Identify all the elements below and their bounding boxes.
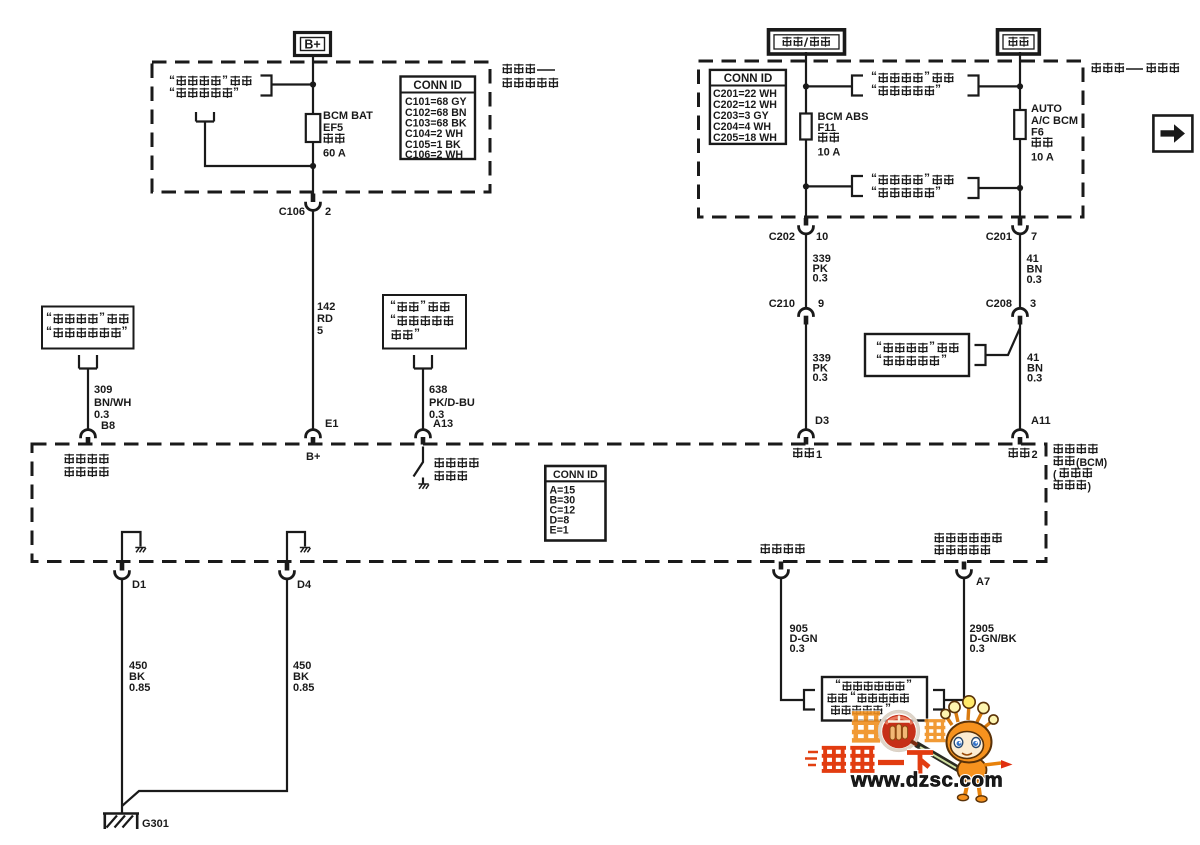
svg-text:0.3: 0.3 (1027, 274, 1042, 286)
svg-text:B+: B+ (306, 451, 320, 463)
svg-text:0.85: 0.85 (129, 682, 150, 694)
svg-text:D1: D1 (132, 579, 146, 591)
svg-text:0.3: 0.3 (790, 643, 805, 655)
svg-text:A11: A11 (1031, 415, 1051, 427)
svg-text:BCM BAT: BCM BAT (323, 110, 373, 122)
svg-text:RD: RD (317, 313, 333, 325)
svg-text:D4: D4 (297, 579, 312, 591)
svg-text:“: “ (876, 352, 882, 366)
svg-text:F11: F11 (818, 122, 836, 134)
svg-text:EF5: EF5 (323, 122, 343, 134)
svg-text:”: ” (222, 73, 228, 87)
svg-text:309: 309 (94, 384, 112, 396)
svg-text:A/C BCM: A/C BCM (1031, 115, 1078, 127)
svg-text:“: “ (390, 298, 396, 312)
svg-text:“: “ (46, 310, 52, 324)
svg-text:“: “ (871, 69, 877, 83)
svg-text:E1: E1 (325, 418, 338, 430)
svg-text:0.3: 0.3 (1027, 373, 1042, 385)
svg-text:“: “ (169, 85, 175, 99)
svg-text:7: 7 (1031, 231, 1037, 243)
svg-text:A7: A7 (976, 576, 990, 588)
svg-text:”: ” (924, 69, 930, 83)
svg-text:”: ” (906, 677, 912, 691)
svg-text:AUTO: AUTO (1031, 103, 1062, 115)
svg-text:”: ” (929, 339, 935, 353)
svg-text:“: “ (871, 82, 877, 96)
svg-text:E=1: E=1 (550, 525, 569, 537)
svg-text:“: “ (835, 677, 841, 691)
svg-text:1: 1 (816, 449, 822, 461)
svg-text:“: “ (850, 689, 856, 703)
svg-text:CONN ID: CONN ID (724, 73, 773, 85)
svg-text:2: 2 (325, 206, 331, 218)
svg-text:10 A: 10 A (818, 147, 841, 159)
svg-text:0.85: 0.85 (293, 682, 314, 694)
svg-text:“: “ (46, 324, 52, 338)
svg-text:CONN ID: CONN ID (413, 80, 462, 92)
svg-text:A13: A13 (433, 418, 453, 430)
svg-text:C201: C201 (986, 231, 1012, 243)
svg-text:”: ” (941, 352, 947, 366)
svg-text:10 A: 10 A (1031, 152, 1054, 164)
svg-text:9: 9 (818, 298, 824, 310)
svg-text:0.3: 0.3 (813, 372, 828, 384)
svg-text:142: 142 (317, 301, 335, 313)
svg-text:C106: C106 (279, 206, 305, 218)
svg-text:B8: B8 (101, 420, 115, 432)
svg-text:10: 10 (816, 231, 828, 243)
svg-text:”: ” (924, 171, 930, 185)
svg-text:2: 2 (1032, 449, 1038, 461)
svg-text:B+: B+ (304, 38, 320, 52)
svg-text:G301: G301 (142, 818, 169, 830)
svg-text:C106=2 WH: C106=2 WH (405, 149, 463, 161)
svg-text:www.dzsc.com: www.dzsc.com (850, 769, 1003, 792)
svg-text:”: ” (122, 324, 128, 338)
svg-text:“: “ (871, 184, 877, 198)
svg-text:“: “ (876, 339, 882, 353)
svg-text:60 A: 60 A (323, 148, 346, 160)
svg-text:BN/WH: BN/WH (94, 397, 131, 409)
svg-text:”: ” (233, 85, 239, 99)
svg-text:”: ” (420, 298, 426, 312)
svg-text:): ) (1088, 481, 1092, 493)
svg-text:”: ” (935, 184, 941, 198)
svg-text:”: ” (99, 310, 105, 324)
svg-text:”: ” (935, 82, 941, 96)
svg-text:”: ” (414, 326, 420, 340)
svg-text:D3: D3 (815, 415, 829, 427)
svg-text:F6: F6 (1031, 127, 1044, 139)
svg-text:C210: C210 (769, 298, 795, 310)
svg-text:C208: C208 (986, 298, 1012, 310)
svg-text:“: “ (871, 171, 877, 185)
svg-text:“: “ (390, 312, 396, 326)
svg-text:C205=18 WH: C205=18 WH (713, 132, 777, 144)
svg-text:3: 3 (1030, 298, 1036, 310)
svg-text:C202: C202 (769, 231, 795, 243)
svg-text:(: ( (1053, 469, 1057, 481)
svg-text:0.3: 0.3 (970, 643, 985, 655)
svg-text:(BCM): (BCM) (1076, 457, 1107, 469)
svg-text:638: 638 (429, 384, 447, 396)
svg-text:PK/D-BU: PK/D-BU (429, 397, 475, 409)
svg-text:5: 5 (317, 325, 323, 337)
svg-text:0.3: 0.3 (813, 273, 828, 285)
svg-text:CONN ID: CONN ID (553, 469, 598, 481)
